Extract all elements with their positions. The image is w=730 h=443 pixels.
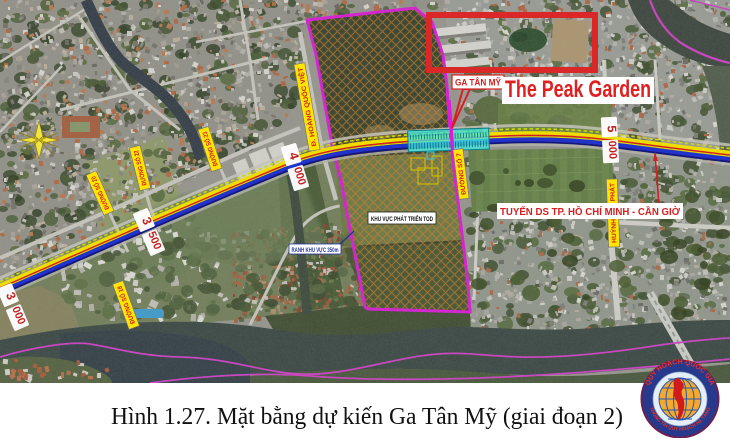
svg-text:000: 000 [606,140,619,159]
svg-text:Hình 1.27. Mặt bằng dự kiến Ga: Hình 1.27. Mặt bằng dự kiến Ga Tân Mỹ (g… [111,404,623,430]
svg-text:TUYẾN DS TP. HỒ CHÍ MINH - CẦN: TUYẾN DS TP. HỒ CHÍ MINH - CẦN GIỜ [500,205,680,218]
svg-text:RANH KHU VỰC 350m: RANH KHU VỰC 350m [292,248,339,254]
svg-text:GA TÂN MỸ: GA TÂN MỸ [455,77,501,88]
svg-text:KHU VỰC PHÁT TRIỂN TOD: KHU VỰC PHÁT TRIỂN TOD [371,214,433,223]
svg-text:5: 5 [604,125,618,133]
svg-text:The Peak Garden: The Peak Garden [505,76,651,103]
